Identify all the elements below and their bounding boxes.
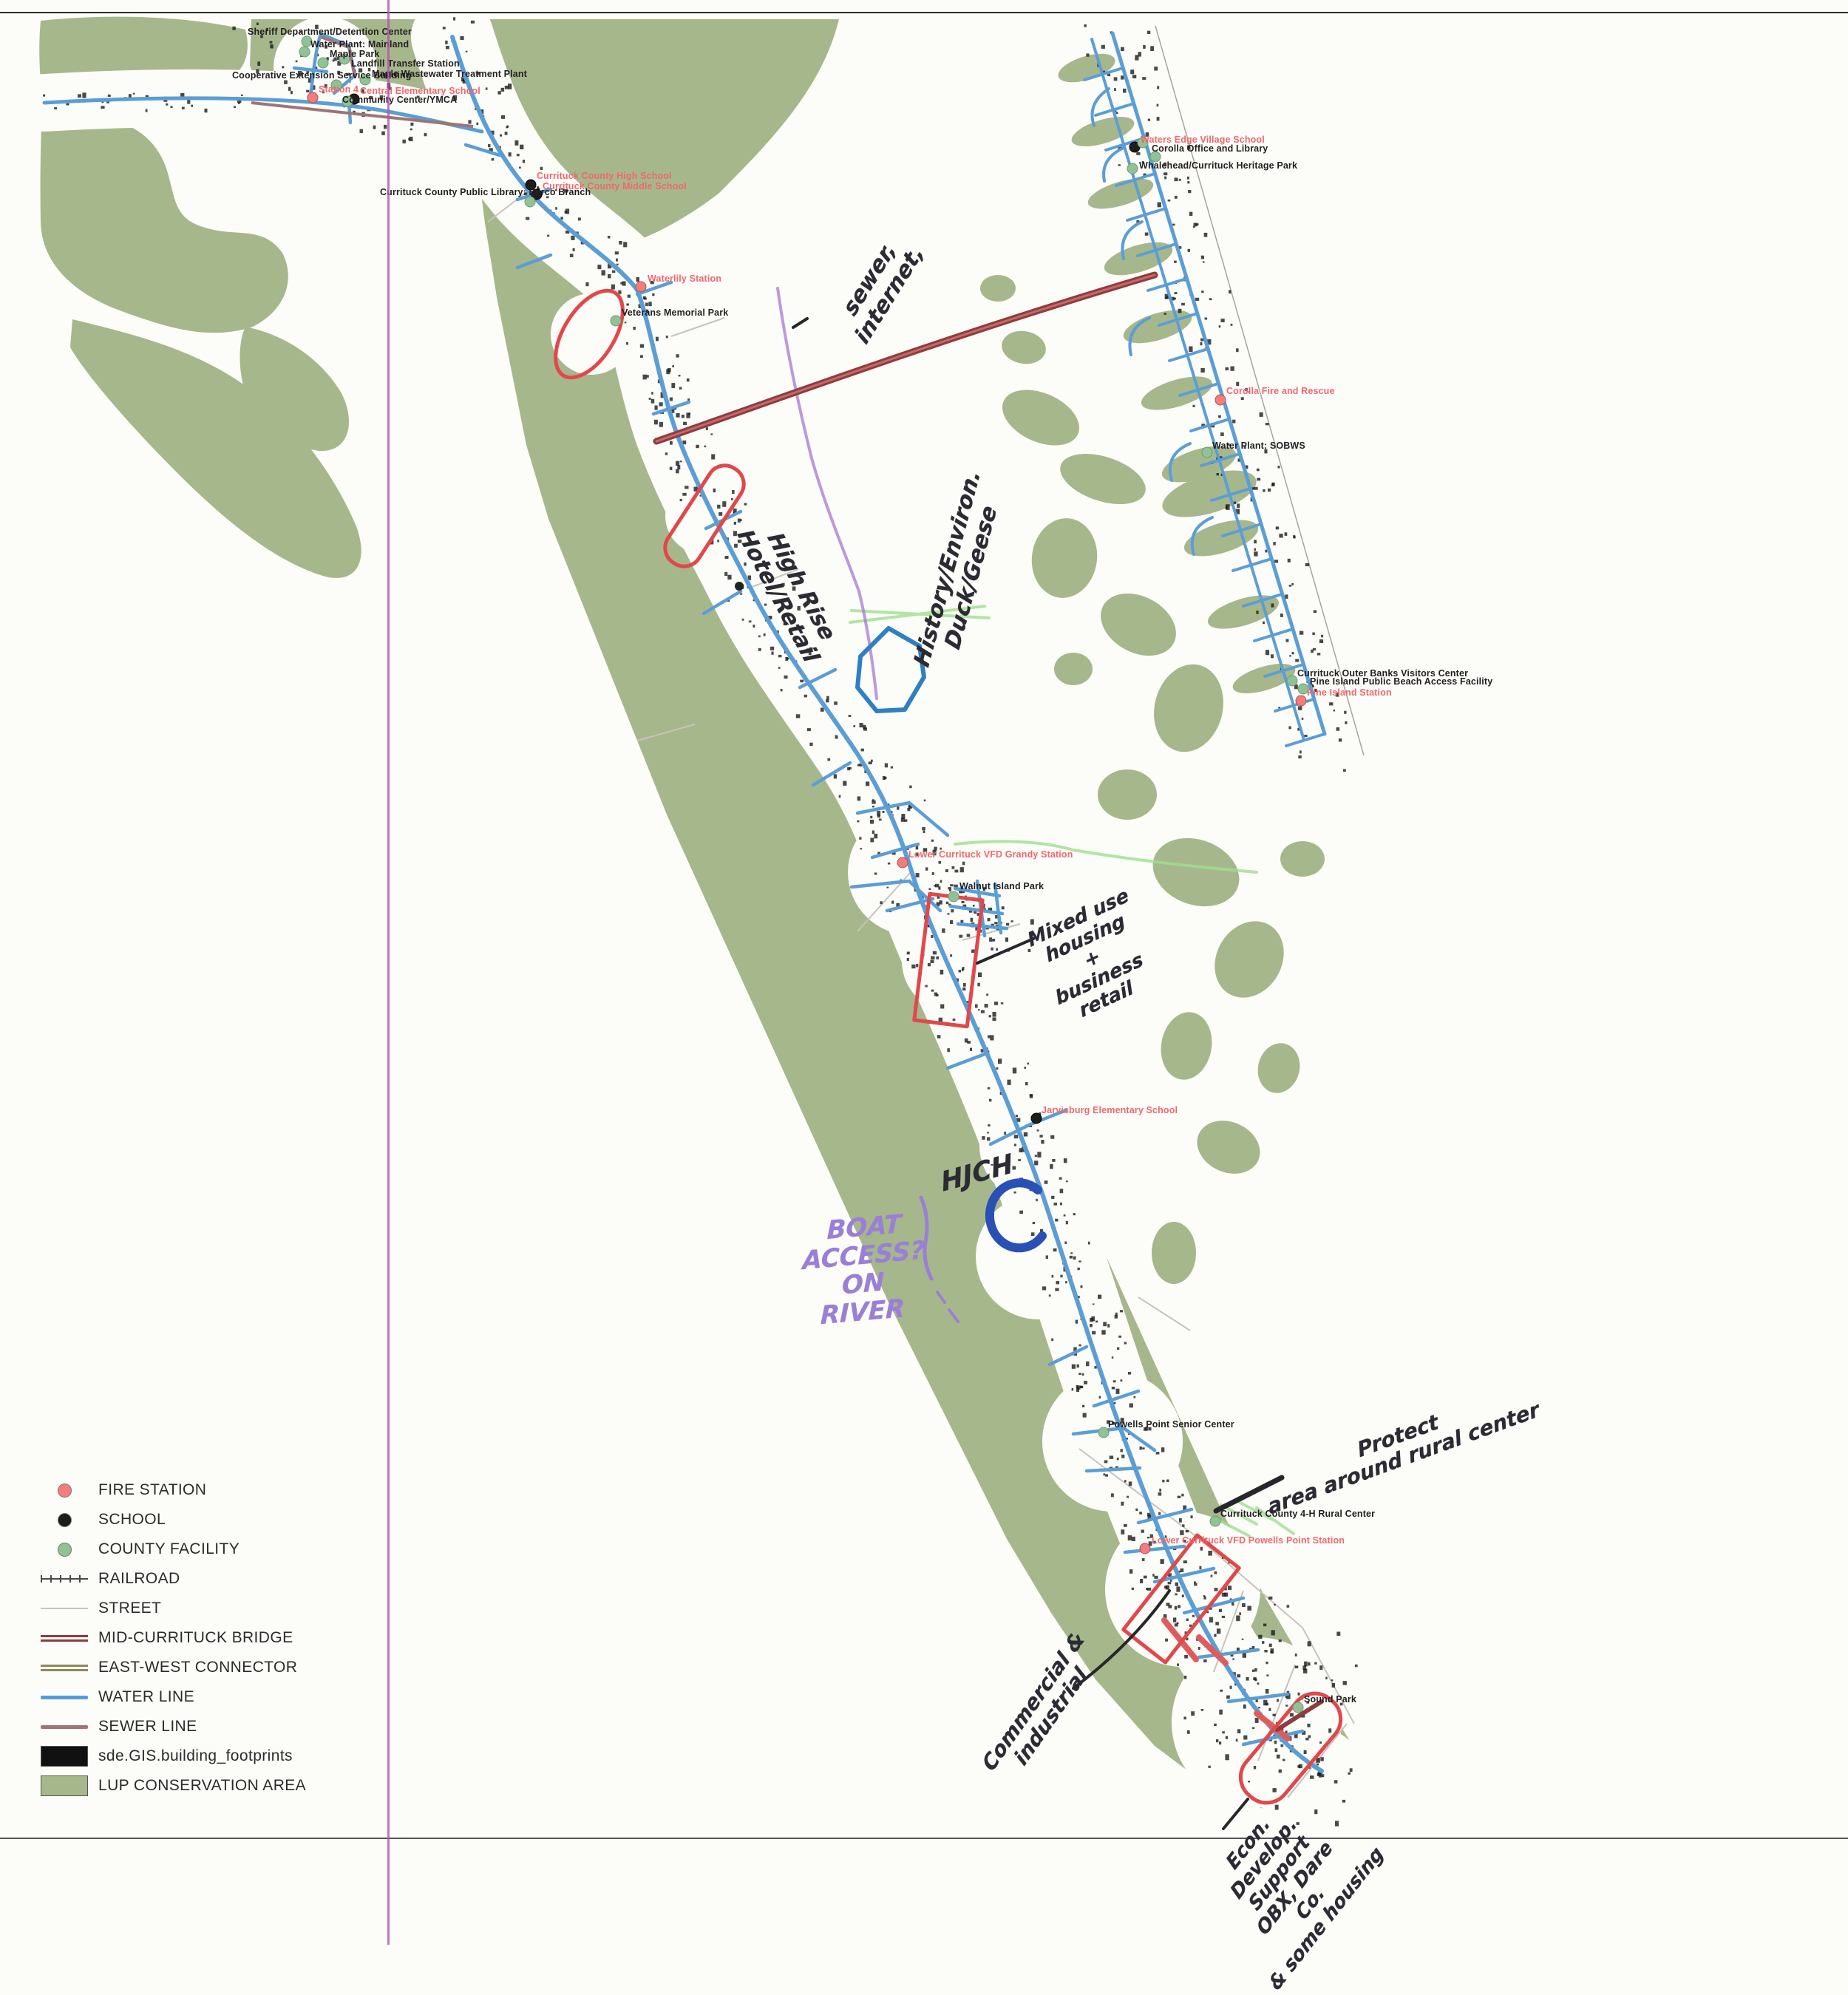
legend-swatch-box bbox=[41, 1746, 88, 1767]
legend-item: COUNTY FACILITY bbox=[41, 1538, 240, 1560]
legend-label: EAST-WEST CONNECTOR bbox=[98, 1659, 297, 1676]
legend-swatch-line bbox=[41, 1725, 88, 1729]
legend-item: LUP CONSERVATION AREA bbox=[41, 1775, 306, 1797]
legend-item: SCHOOL bbox=[41, 1509, 166, 1531]
legend-label: LUP CONSERVATION AREA bbox=[98, 1777, 306, 1795]
legend-swatch-double bbox=[41, 1665, 88, 1671]
legend-label: MID-CURRITUCK BRIDGE bbox=[98, 1629, 293, 1647]
legend-item: STREET bbox=[41, 1597, 161, 1620]
scan-artifact-line bbox=[387, 0, 390, 1945]
legend-swatch-dot bbox=[41, 1543, 88, 1557]
legend-item: SEWER LINE bbox=[41, 1716, 197, 1738]
legend-label: WATER LINE bbox=[98, 1688, 194, 1706]
legend-label: COUNTY FACILITY bbox=[98, 1540, 240, 1558]
legend-label: STREET bbox=[98, 1600, 161, 1617]
legend-swatch-double bbox=[41, 1635, 88, 1642]
legend-label: SEWER LINE bbox=[98, 1718, 197, 1736]
legend-item: sde.GIS.building_footprints bbox=[41, 1745, 293, 1767]
legend-item: WATER LINE bbox=[41, 1686, 194, 1708]
legend-swatch-dot bbox=[41, 1483, 88, 1498]
legend-swatch-box bbox=[41, 1775, 88, 1796]
legend-item: FIRE STATION bbox=[41, 1479, 206, 1501]
legend-label: SCHOOL bbox=[98, 1511, 166, 1529]
legend-item: MID-CURRITUCK BRIDGE bbox=[41, 1627, 293, 1649]
scanned-map-page: Sheriff Department/Detention CenterWater… bbox=[0, 0, 1848, 1945]
legend-label: FIRE STATION bbox=[98, 1481, 206, 1499]
legend-swatch-line bbox=[41, 1696, 88, 1699]
legend-swatch-railroad bbox=[41, 1574, 88, 1583]
legend-item: RAILROAD bbox=[41, 1568, 180, 1590]
map-legend: FIRE STATIONSCHOOLCOUNTY FACILITYRAILROA… bbox=[0, 0, 1848, 1945]
legend-label: sde.GIS.building_footprints bbox=[98, 1747, 293, 1765]
legend-swatch-dot bbox=[41, 1513, 88, 1527]
legend-swatch-street bbox=[41, 1608, 88, 1609]
legend-label: RAILROAD bbox=[98, 1570, 180, 1588]
legend-item: EAST-WEST CONNECTOR bbox=[41, 1656, 297, 1679]
